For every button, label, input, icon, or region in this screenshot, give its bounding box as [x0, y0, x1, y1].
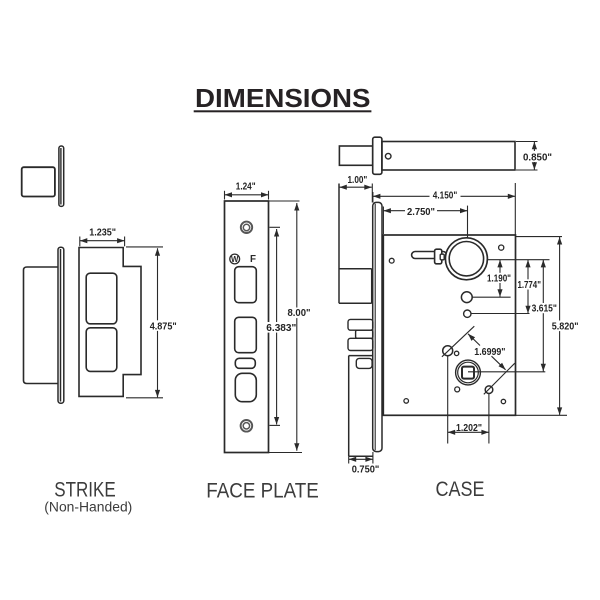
- svg-text:0.850": 0.850": [523, 153, 552, 164]
- svg-text:1.6999": 1.6999": [474, 347, 505, 358]
- svg-text:1.00": 1.00": [348, 175, 368, 186]
- svg-text:5.820": 5.820": [552, 322, 579, 333]
- svg-text:3.615": 3.615": [532, 304, 557, 315]
- svg-text:4.150": 4.150": [433, 191, 458, 202]
- svg-text:1.190": 1.190": [487, 274, 511, 285]
- svg-text:1.24": 1.24": [236, 181, 256, 192]
- svg-text:1.235": 1.235": [89, 227, 116, 238]
- svg-text:DIMENSIONS: DIMENSIONS: [195, 83, 371, 113]
- svg-text:8.00": 8.00": [288, 308, 311, 319]
- svg-text:CASE: CASE: [436, 478, 485, 501]
- svg-text:6.383": 6.383": [266, 323, 296, 334]
- svg-text:2.750": 2.750": [407, 207, 435, 218]
- svg-text:W: W: [231, 255, 239, 264]
- svg-text:1.202": 1.202": [456, 423, 482, 434]
- svg-text:1.774": 1.774": [517, 280, 541, 291]
- svg-text:0.750": 0.750": [352, 464, 380, 475]
- svg-text:FACE PLATE: FACE PLATE: [206, 479, 319, 502]
- svg-text:4.875": 4.875": [150, 322, 177, 333]
- svg-text:STRIKE: STRIKE: [54, 479, 116, 502]
- svg-text:(Non-Handed): (Non-Handed): [44, 500, 132, 515]
- svg-text:F: F: [250, 254, 256, 265]
